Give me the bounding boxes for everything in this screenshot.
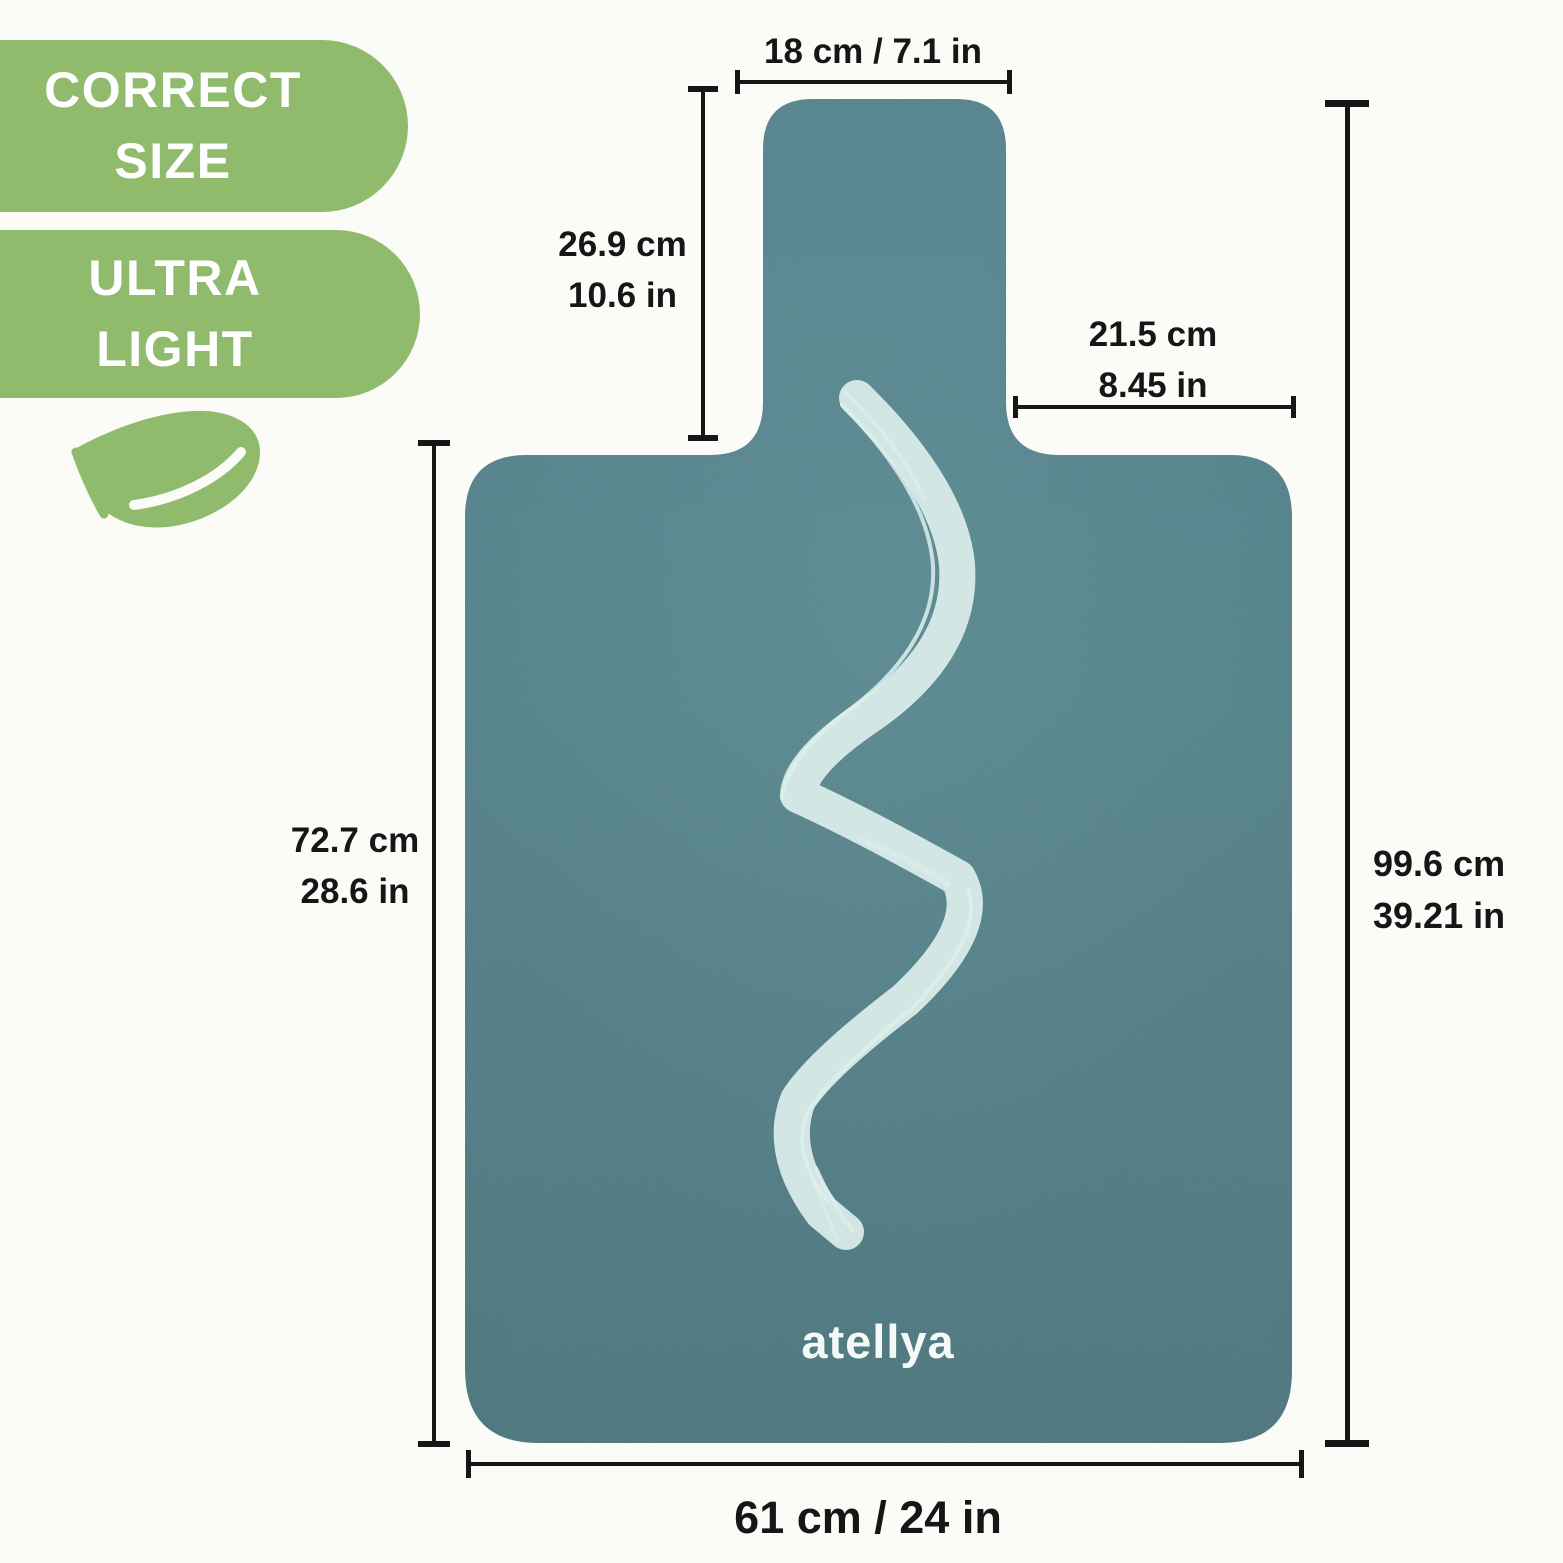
- body-height-in: 28.6 in: [255, 867, 455, 918]
- badge-correct-size-line1: CORRECT: [44, 55, 302, 126]
- dimension-label-handle-width: 18 cm / 7.1 in: [683, 26, 1063, 79]
- product-dimensions-infographic: atellya CORRECT SIZE ULTRA LIGHT 18 cm /…: [0, 0, 1563, 1563]
- brand-logo: atellya: [801, 1315, 954, 1368]
- feather-icon: [73, 411, 260, 528]
- badge-ultra-light-line2: LIGHT: [96, 314, 253, 385]
- dimension-label-shoulder-width: 21.5 cm 8.45 in: [1003, 310, 1303, 412]
- shoulder-width-cm: 21.5 cm: [1003, 310, 1303, 361]
- dimension-label-body-height: 72.7 cm 28.6 in: [255, 816, 455, 918]
- handle-height-in: 10.6 in: [515, 271, 730, 322]
- handle-height-cm: 26.9 cm: [515, 220, 730, 271]
- total-height-in: 39.21 in: [1373, 890, 1563, 942]
- dimension-label-total-height: 99.6 cm 39.21 in: [1373, 838, 1563, 942]
- dimension-line-body-height: [418, 440, 450, 1447]
- badge-ultra-light: ULTRA LIGHT: [0, 230, 420, 398]
- dimension-line-total-height: [1325, 100, 1369, 1447]
- badge-ultra-light-line1: ULTRA: [88, 243, 261, 314]
- dimension-line-total-width: [466, 1450, 1304, 1478]
- shoulder-width-in: 8.45 in: [1003, 361, 1303, 412]
- badge-correct-size: CORRECT SIZE: [0, 40, 408, 212]
- dimension-label-handle-height: 26.9 cm 10.6 in: [515, 220, 730, 322]
- total-height-cm: 99.6 cm: [1373, 838, 1563, 890]
- body-height-cm: 72.7 cm: [255, 816, 455, 867]
- dimension-label-total-width: 61 cm / 24 in: [618, 1484, 1118, 1552]
- badge-correct-size-line2: SIZE: [114, 126, 231, 197]
